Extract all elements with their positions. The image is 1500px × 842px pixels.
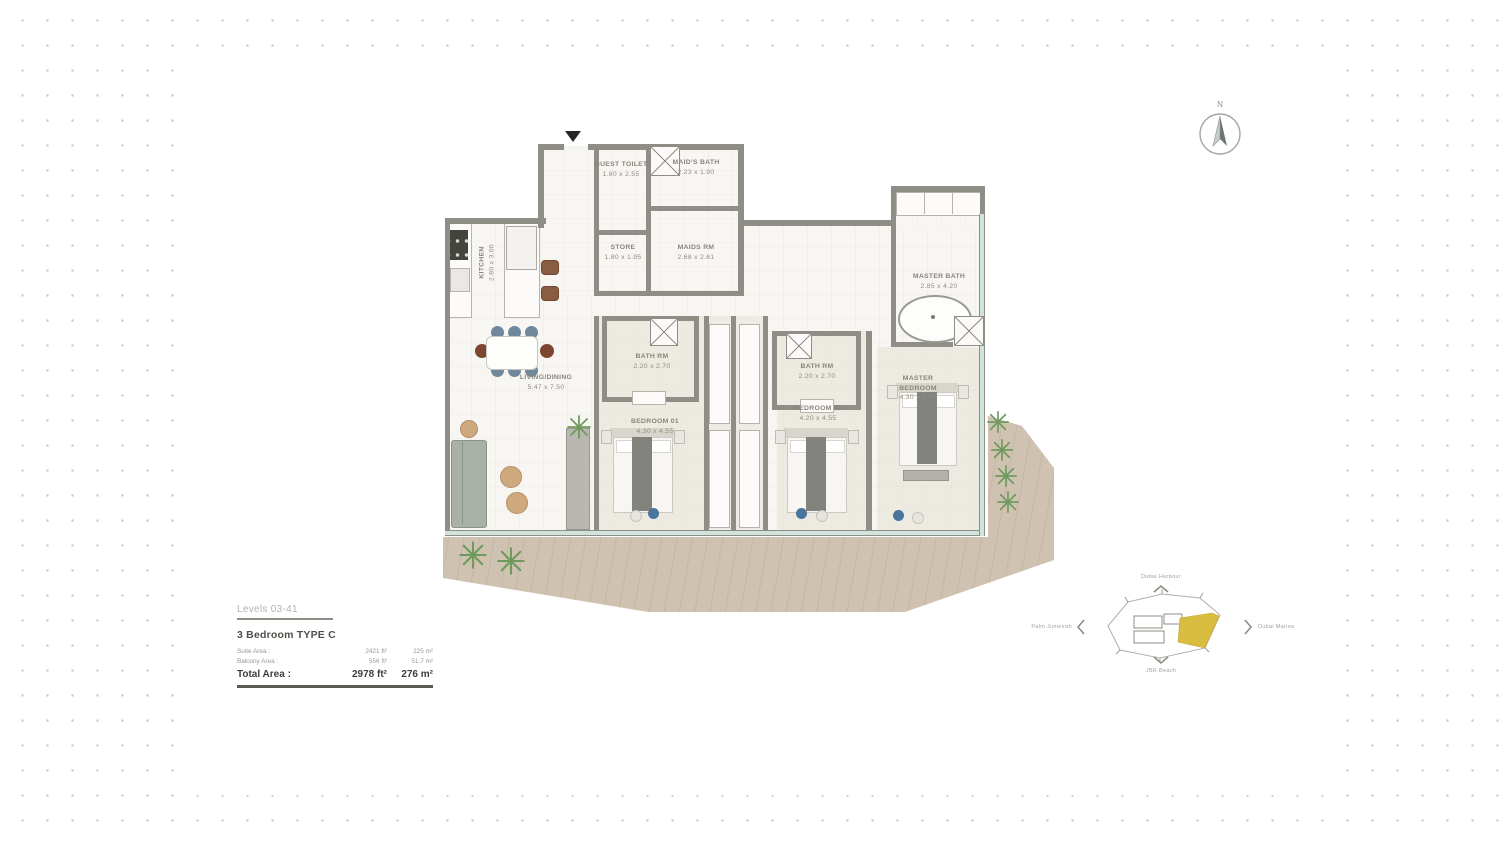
pouf — [500, 466, 522, 488]
locator-label-right: Dubai Marina — [1258, 624, 1302, 630]
bed-runner — [917, 392, 937, 464]
room-label-master-bath: MASTER BATH 2.85 x 4.20 — [910, 272, 968, 291]
plant-icon — [458, 540, 488, 570]
nightstand — [601, 430, 612, 444]
sofa — [451, 440, 487, 528]
room-label-bath-rm-1: BATH RM 2.20 x 2.70 — [612, 352, 692, 371]
shaft-icon — [786, 333, 812, 359]
area-legend: Levels 03-41 3 Bedroom TYPE C Suite Area… — [237, 599, 433, 688]
nightstand — [775, 430, 786, 444]
area-row-balcony: Balcony Area : 556 ft² 51.7 m² — [237, 657, 433, 667]
room-label-bath-rm-2: BATH RM 2.20 x 2.70 — [777, 362, 857, 381]
plant-icon — [496, 546, 526, 576]
dining-end-chair — [540, 344, 554, 358]
room-label-master-bedroom: MASTER BEDROOM 4.30 x 4.70 — [886, 374, 950, 403]
wall — [646, 230, 651, 296]
lamp — [796, 508, 807, 519]
wall — [445, 218, 546, 224]
wall — [694, 316, 699, 402]
bed-bench — [903, 470, 949, 481]
tv-wall — [566, 428, 590, 530]
wall — [738, 220, 896, 226]
unit-type-label: 3 Bedroom TYPE C — [237, 629, 433, 641]
dining-table — [486, 336, 538, 370]
glass-wall — [979, 214, 985, 536]
vanity — [632, 391, 666, 405]
wall — [891, 186, 985, 192]
closet-doors — [739, 430, 760, 528]
wall — [651, 206, 744, 211]
wall — [538, 144, 544, 228]
chevron-up-icon — [1152, 584, 1170, 593]
pouf — [506, 492, 528, 514]
locator-label-bottom: JBR Beach — [1111, 668, 1211, 674]
wall — [866, 331, 872, 536]
wall — [602, 316, 607, 402]
chevron-down-icon — [1152, 656, 1170, 665]
area-row-suite: Suite Area : 2421 ft² 225 m² — [237, 647, 433, 657]
room-label-bedroom-01: BEDROOM 01 4.30 x 4.55 — [617, 417, 693, 436]
page: { "legend": { "levels": "Levels 03-41", … — [0, 0, 1500, 842]
shaft-icon — [954, 316, 984, 346]
wall — [891, 342, 953, 347]
wardrobe-divider — [924, 192, 925, 214]
compass-icon — [1194, 100, 1246, 160]
locator-label-left: Palm Jumeirah — [1030, 624, 1072, 630]
wardrobe-divider — [952, 192, 953, 214]
bed-runner — [632, 437, 652, 511]
compass-north-label: N — [1194, 100, 1246, 109]
room-label-kitchen: KITCHEN 2.80 x 3.00 — [477, 227, 496, 299]
room-label-bedroom-02: BEDROOM 02 4.20 x 4.55 — [780, 404, 856, 423]
floorplate-icon — [1100, 588, 1230, 666]
ottoman — [912, 512, 924, 524]
ottoman — [630, 510, 642, 522]
plant-icon — [996, 490, 1020, 514]
ottoman — [816, 510, 828, 522]
plant-icon — [990, 438, 1014, 462]
compass: N — [1194, 100, 1246, 160]
legend-rule — [237, 685, 433, 688]
bathtub-drain — [931, 315, 935, 319]
bar-stool — [541, 260, 559, 275]
room-label-guest-toilet: GUEST TOILET 1.80 x 2.55 — [594, 160, 648, 179]
lamp — [893, 510, 904, 521]
room-label-living-dining: LIVING/DINING 5.47 x 7.50 — [500, 373, 592, 392]
wall — [763, 316, 768, 536]
room-label-store: STORE 1.80 x 1.95 — [596, 243, 650, 262]
bed-runner — [806, 437, 826, 511]
master-wardrobe — [896, 192, 982, 216]
locator-label-top: Dubai Harbour — [1111, 574, 1211, 580]
kitchen-sink — [450, 268, 470, 292]
levels-label: Levels 03-41 — [237, 604, 333, 620]
wall — [445, 218, 450, 536]
wall — [891, 186, 896, 347]
area-row-total: Total Area : 2978 ft² 276 m² — [237, 669, 433, 680]
plant-icon — [994, 464, 1018, 488]
nightstand — [958, 385, 969, 399]
wall — [731, 316, 736, 536]
closet-doors — [709, 324, 730, 424]
building-locator: Dubai Harbour JBR Beach Palm Jumeirah Du… — [1030, 570, 1300, 680]
fridge — [506, 226, 537, 270]
bed-headboard — [784, 428, 848, 437]
pouf — [460, 420, 478, 438]
area-table: Suite Area : 2421 ft² 225 m² Balcony Are… — [237, 647, 433, 666]
wall — [594, 316, 599, 536]
chevron-left-icon — [1076, 618, 1085, 636]
stove-icon — [450, 230, 468, 260]
bar-stool — [541, 286, 559, 301]
room-label-maids-bath: MAID'S BATH 2.23 x 1.90 — [662, 158, 730, 177]
lamp — [648, 508, 659, 519]
room-label-maids-rm: MAIDS RM 2.68 x 2.61 — [656, 243, 736, 262]
wall — [594, 291, 744, 296]
plant-icon — [986, 410, 1010, 434]
wall — [704, 316, 709, 536]
closet-doors — [739, 324, 760, 424]
entry-arrow-icon — [565, 131, 581, 142]
sofa-cushion-line — [462, 442, 463, 524]
glass-wall — [445, 530, 985, 536]
chevron-right-icon — [1244, 618, 1253, 636]
shaft-icon — [650, 318, 678, 346]
wall — [594, 230, 651, 235]
plant-icon — [566, 414, 592, 440]
closet-doors — [709, 430, 730, 528]
nightstand — [848, 430, 859, 444]
